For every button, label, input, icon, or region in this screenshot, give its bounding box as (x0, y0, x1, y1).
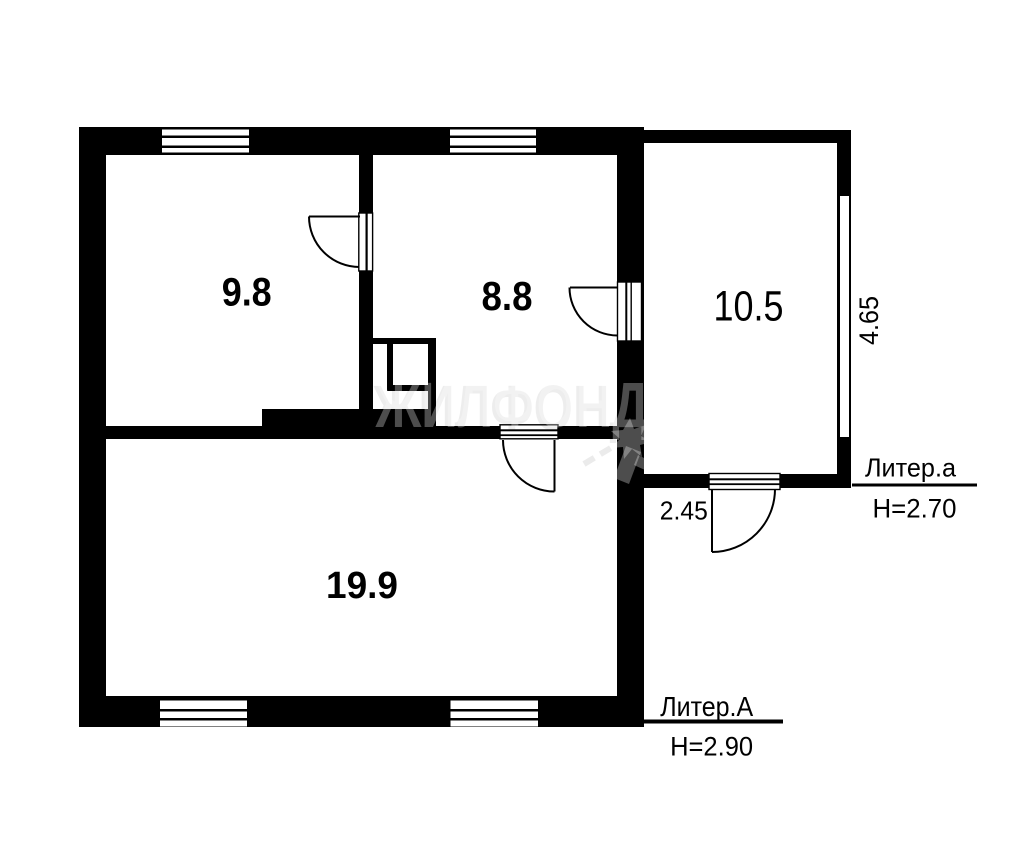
svg-text:8.8: 8.8 (482, 273, 533, 319)
svg-text:Н=2.90: Н=2.90 (670, 731, 753, 761)
svg-text:Литер.а: Литер.а (865, 452, 957, 482)
svg-text:10.5: 10.5 (714, 283, 784, 331)
svg-text:4.65: 4.65 (854, 296, 884, 345)
svg-text:ЖИЛФОНД: ЖИЛФОНД (375, 369, 649, 441)
svg-text:Литер.А: Литер.А (660, 691, 753, 722)
svg-text:Н=2.70: Н=2.70 (873, 493, 957, 523)
svg-text:2.45: 2.45 (660, 495, 708, 525)
svg-text:19.9: 19.9 (326, 565, 398, 607)
svg-text:9.8: 9.8 (222, 271, 272, 315)
